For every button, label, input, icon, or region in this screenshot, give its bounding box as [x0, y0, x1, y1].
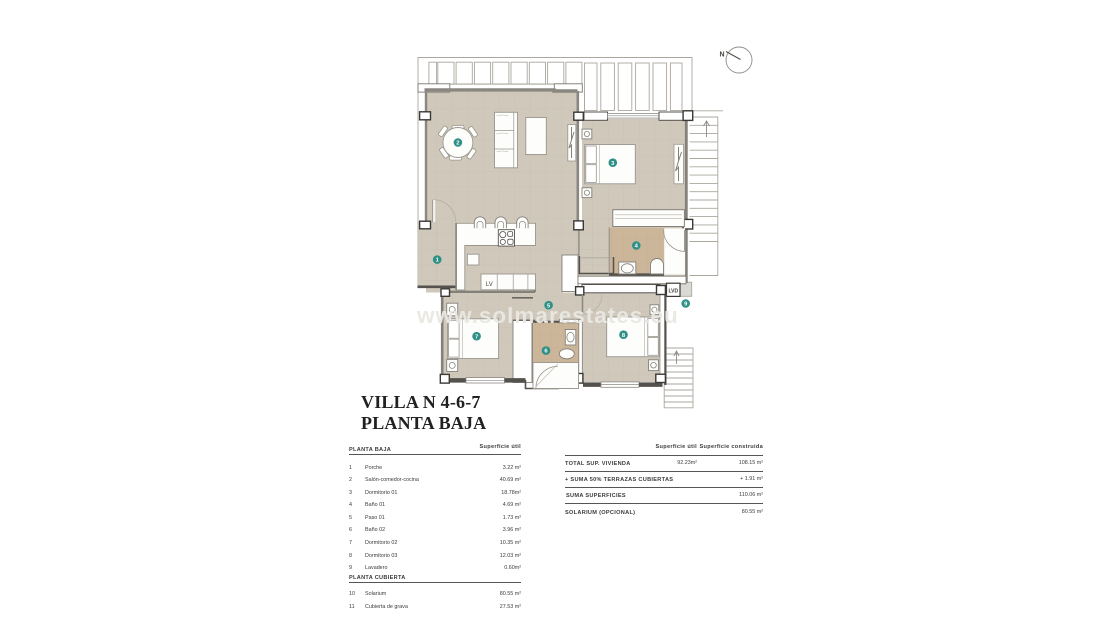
svg-text:LVD: LVD [668, 288, 678, 294]
svg-text:N: N [719, 52, 724, 59]
svg-text:7: 7 [475, 334, 478, 340]
svg-text:LV: LV [486, 282, 493, 288]
svg-text:2: 2 [456, 141, 459, 147]
